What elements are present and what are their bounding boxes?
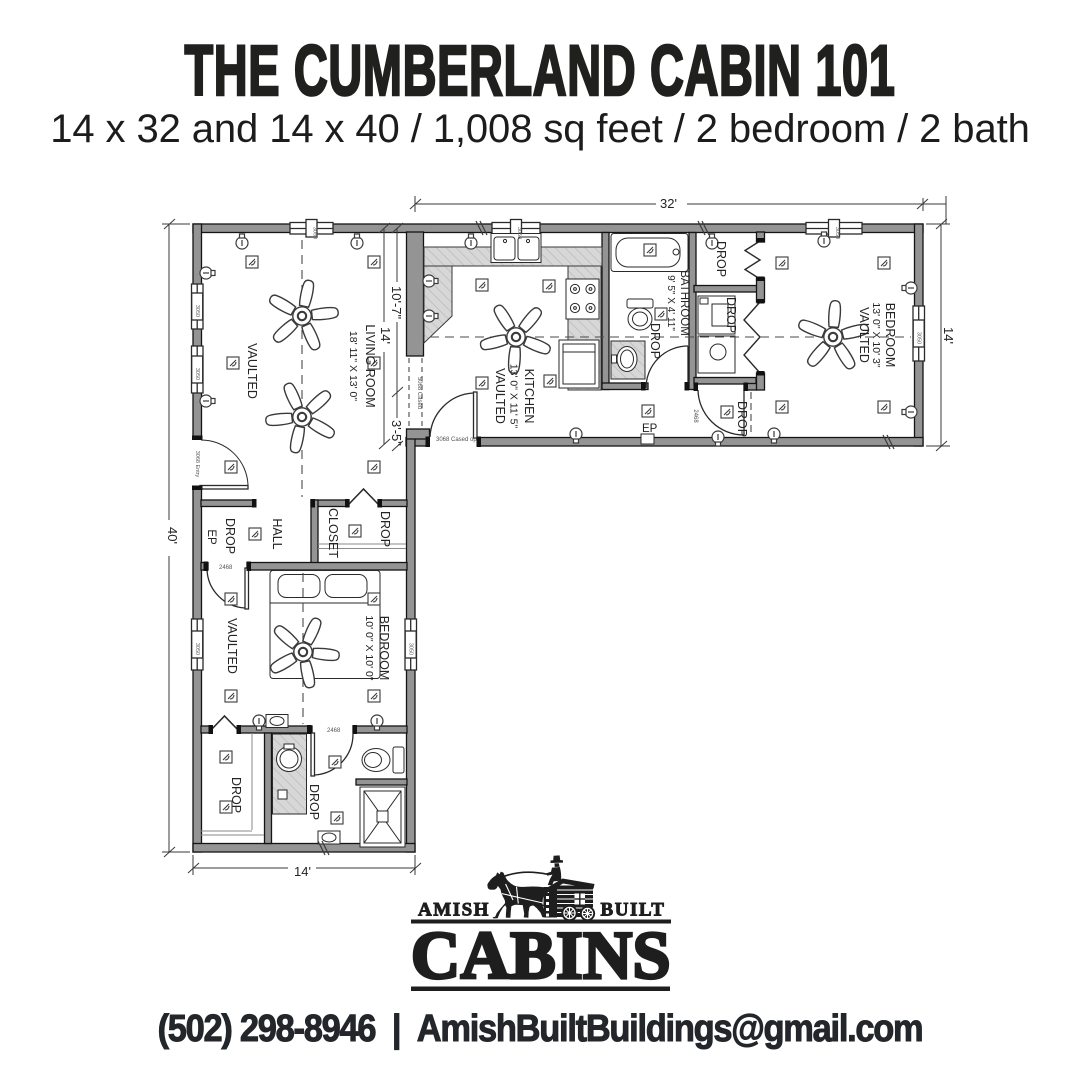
- svg-text:CABINS: CABINS: [411, 917, 671, 993]
